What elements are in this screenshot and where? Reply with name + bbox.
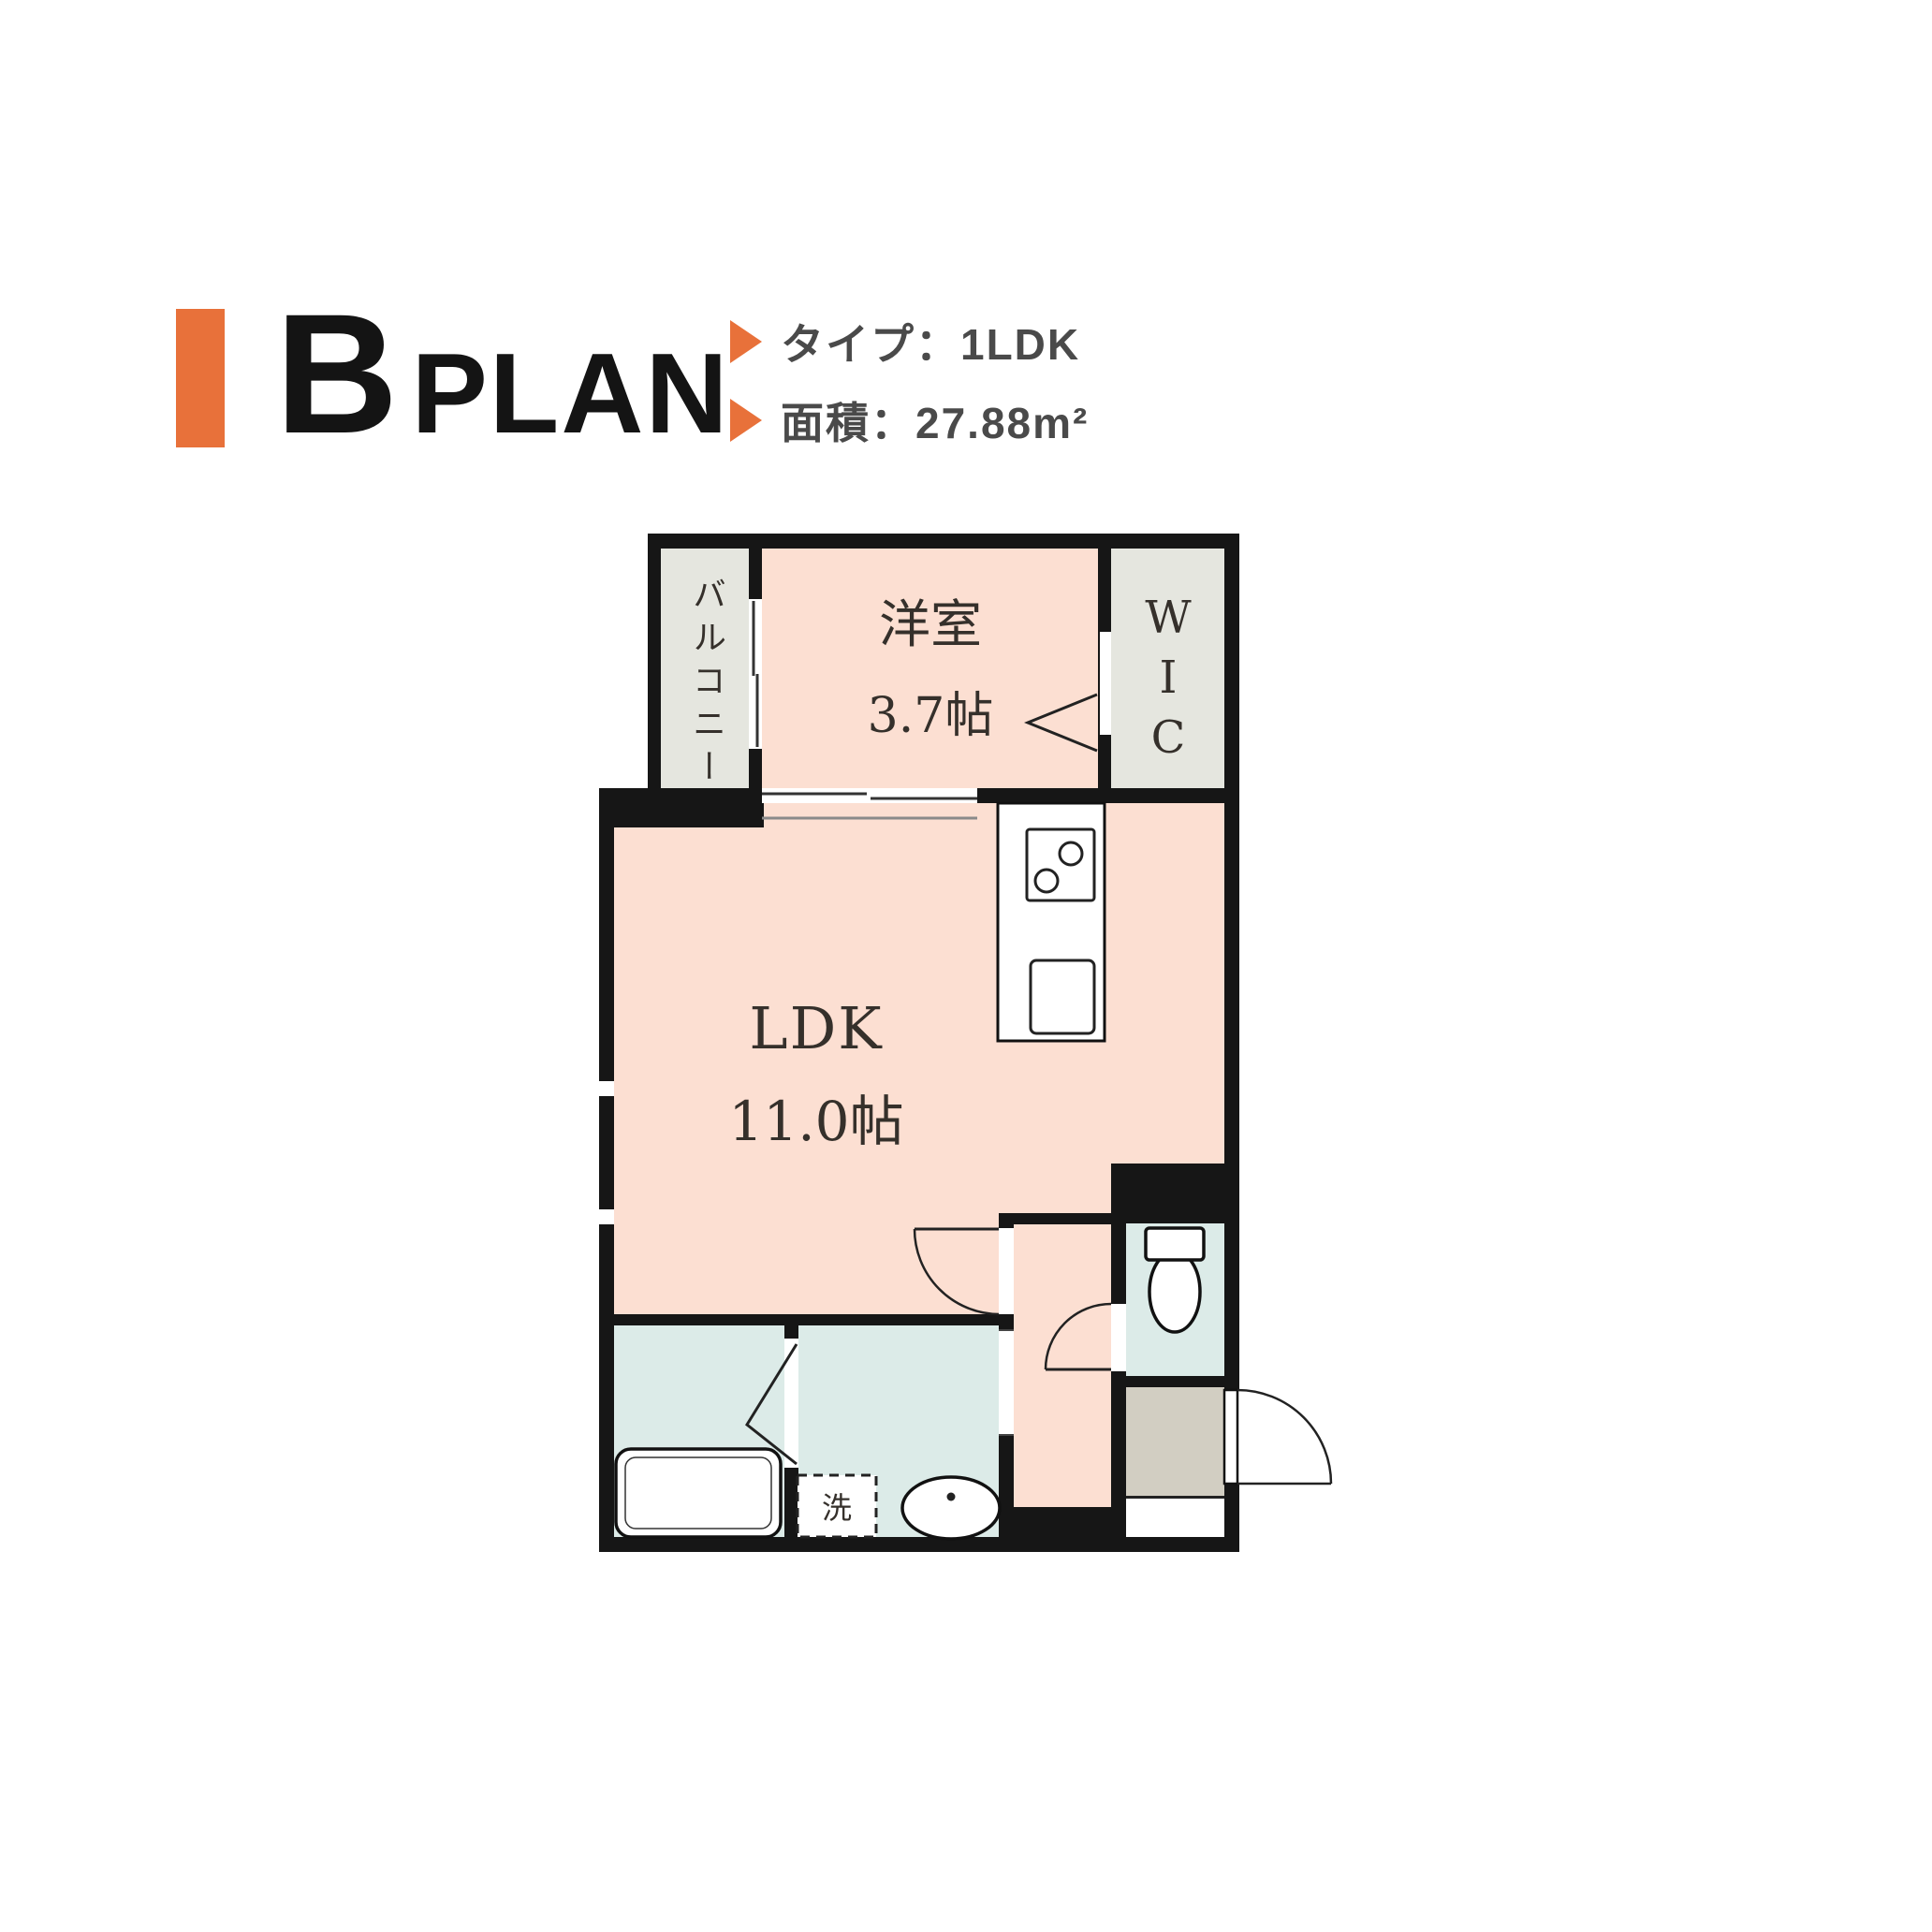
- opening-ldk-door: [999, 1228, 1014, 1314]
- label-laundry: 洗: [798, 1475, 876, 1537]
- opening-toilet-door: [1111, 1304, 1126, 1371]
- label-wic: W I C: [1130, 569, 1207, 786]
- wall-right: [1224, 534, 1239, 1390]
- wic-letter: I: [1160, 651, 1178, 704]
- opening-washroom-door: [999, 1329, 1014, 1436]
- type-bullet-icon: [730, 320, 762, 363]
- plan-word: PLAN: [411, 329, 729, 457]
- wic-letter: C: [1151, 711, 1186, 764]
- ldk-name: LDK: [749, 994, 883, 1062]
- opening-bathroom-door: [784, 1339, 798, 1468]
- wall-toilet-corner-block: [1111, 1164, 1239, 1223]
- room-hallway: [1014, 1213, 1111, 1513]
- wall-ldk-bottom: [599, 1314, 1014, 1325]
- wall-balcony-step: [599, 803, 764, 827]
- label-ldk: LDK 11.0帖: [629, 985, 1003, 1164]
- type-label: タイプ：1LDK: [781, 311, 1080, 373]
- plan-accent-bar: [176, 309, 225, 447]
- entrance-step: [1126, 1496, 1224, 1540]
- wall-bottom: [599, 1537, 1239, 1552]
- western-room-size: 3.7帖: [868, 676, 994, 746]
- plan-specs: タイプ：1LDK 面積：27.88m²: [730, 311, 1089, 451]
- room-bathroom: [614, 1325, 784, 1539]
- label-western-room: 洋室 3.7帖: [781, 567, 1080, 760]
- window-ldk-left-2: [599, 1209, 614, 1224]
- room-toilet: [1126, 1223, 1224, 1376]
- spec-area-row: 面積：27.88m²: [730, 389, 1089, 451]
- room-entrance: [1126, 1387, 1224, 1498]
- wall-left: [599, 812, 614, 1552]
- entrance-door-arc: [1237, 1390, 1331, 1484]
- area-bullet-icon: [730, 399, 762, 442]
- opening-wic-door: [1100, 632, 1111, 735]
- wall-hall-top: [999, 1213, 1111, 1224]
- plan-title: BPLAN: [275, 288, 730, 459]
- ldk-size: 11.0帖: [728, 1077, 903, 1156]
- plan-letter: B: [275, 278, 398, 469]
- wall-entrance-top: [1111, 1376, 1239, 1387]
- spec-type-row: タイプ：1LDK: [730, 311, 1089, 373]
- window-balcony: [749, 599, 762, 749]
- window-ldk-left-1: [599, 1081, 614, 1096]
- opening-western-ldk-slider: [762, 788, 977, 803]
- page: BPLAN タイプ：1LDK 面積：27.88m²: [0, 0, 1932, 1932]
- area-label: 面積：27.88m²: [781, 389, 1089, 451]
- wic-letter: W: [1145, 592, 1191, 644]
- wall-balcony-outer: [648, 534, 661, 814]
- western-room-name: 洋室: [879, 582, 982, 657]
- entrance-door-leaf: [1224, 1390, 1237, 1484]
- wall-hall-bottom-block: [999, 1507, 1126, 1539]
- label-balcony: バルコニー: [666, 567, 745, 801]
- wall-top: [648, 534, 1239, 549]
